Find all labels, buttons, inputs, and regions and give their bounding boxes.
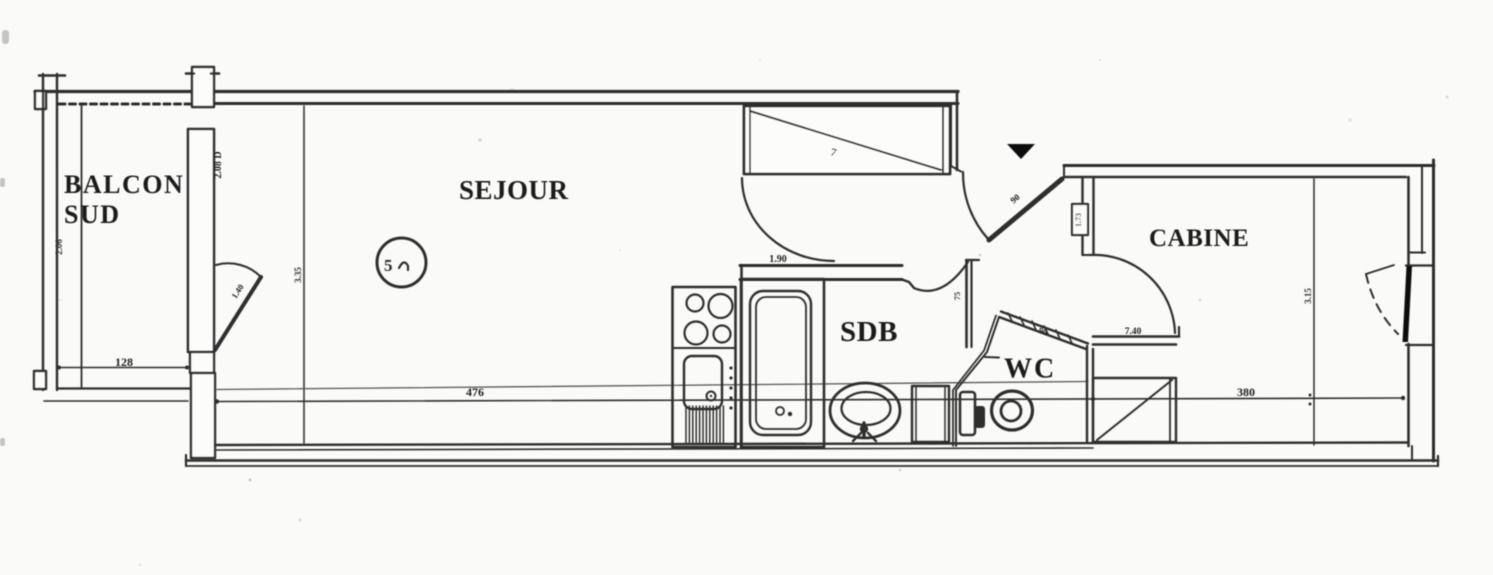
svg-text:CABINE: CABINE xyxy=(1149,225,1249,252)
svg-text:SEJOUR: SEJOUR xyxy=(459,175,569,205)
svg-text:90: 90 xyxy=(1008,192,1022,206)
svg-text:5: 5 xyxy=(384,256,393,275)
svg-text:WC: WC xyxy=(1004,354,1056,385)
svg-text:SUD: SUD xyxy=(64,200,121,229)
svg-text:380: 380 xyxy=(1237,385,1255,399)
svg-text:7.40: 7.40 xyxy=(1125,327,1142,337)
svg-text:2.08 D: 2.08 D xyxy=(213,151,224,178)
svg-text:BALCON: BALCON xyxy=(64,170,184,199)
svg-text:1.90: 1.90 xyxy=(769,254,787,265)
svg-text:2.06: 2.06 xyxy=(54,239,64,255)
svg-text:SDB: SDB xyxy=(840,316,898,348)
svg-text:1.40: 1.40 xyxy=(229,282,245,300)
svg-text:476: 476 xyxy=(466,385,484,399)
svg-text:75: 75 xyxy=(952,292,962,301)
svg-text:3.35: 3.35 xyxy=(293,267,303,283)
svg-text:128: 128 xyxy=(115,355,133,369)
svg-text:1.73: 1.73 xyxy=(1074,213,1083,227)
svg-text:3.15: 3.15 xyxy=(1303,288,1313,304)
